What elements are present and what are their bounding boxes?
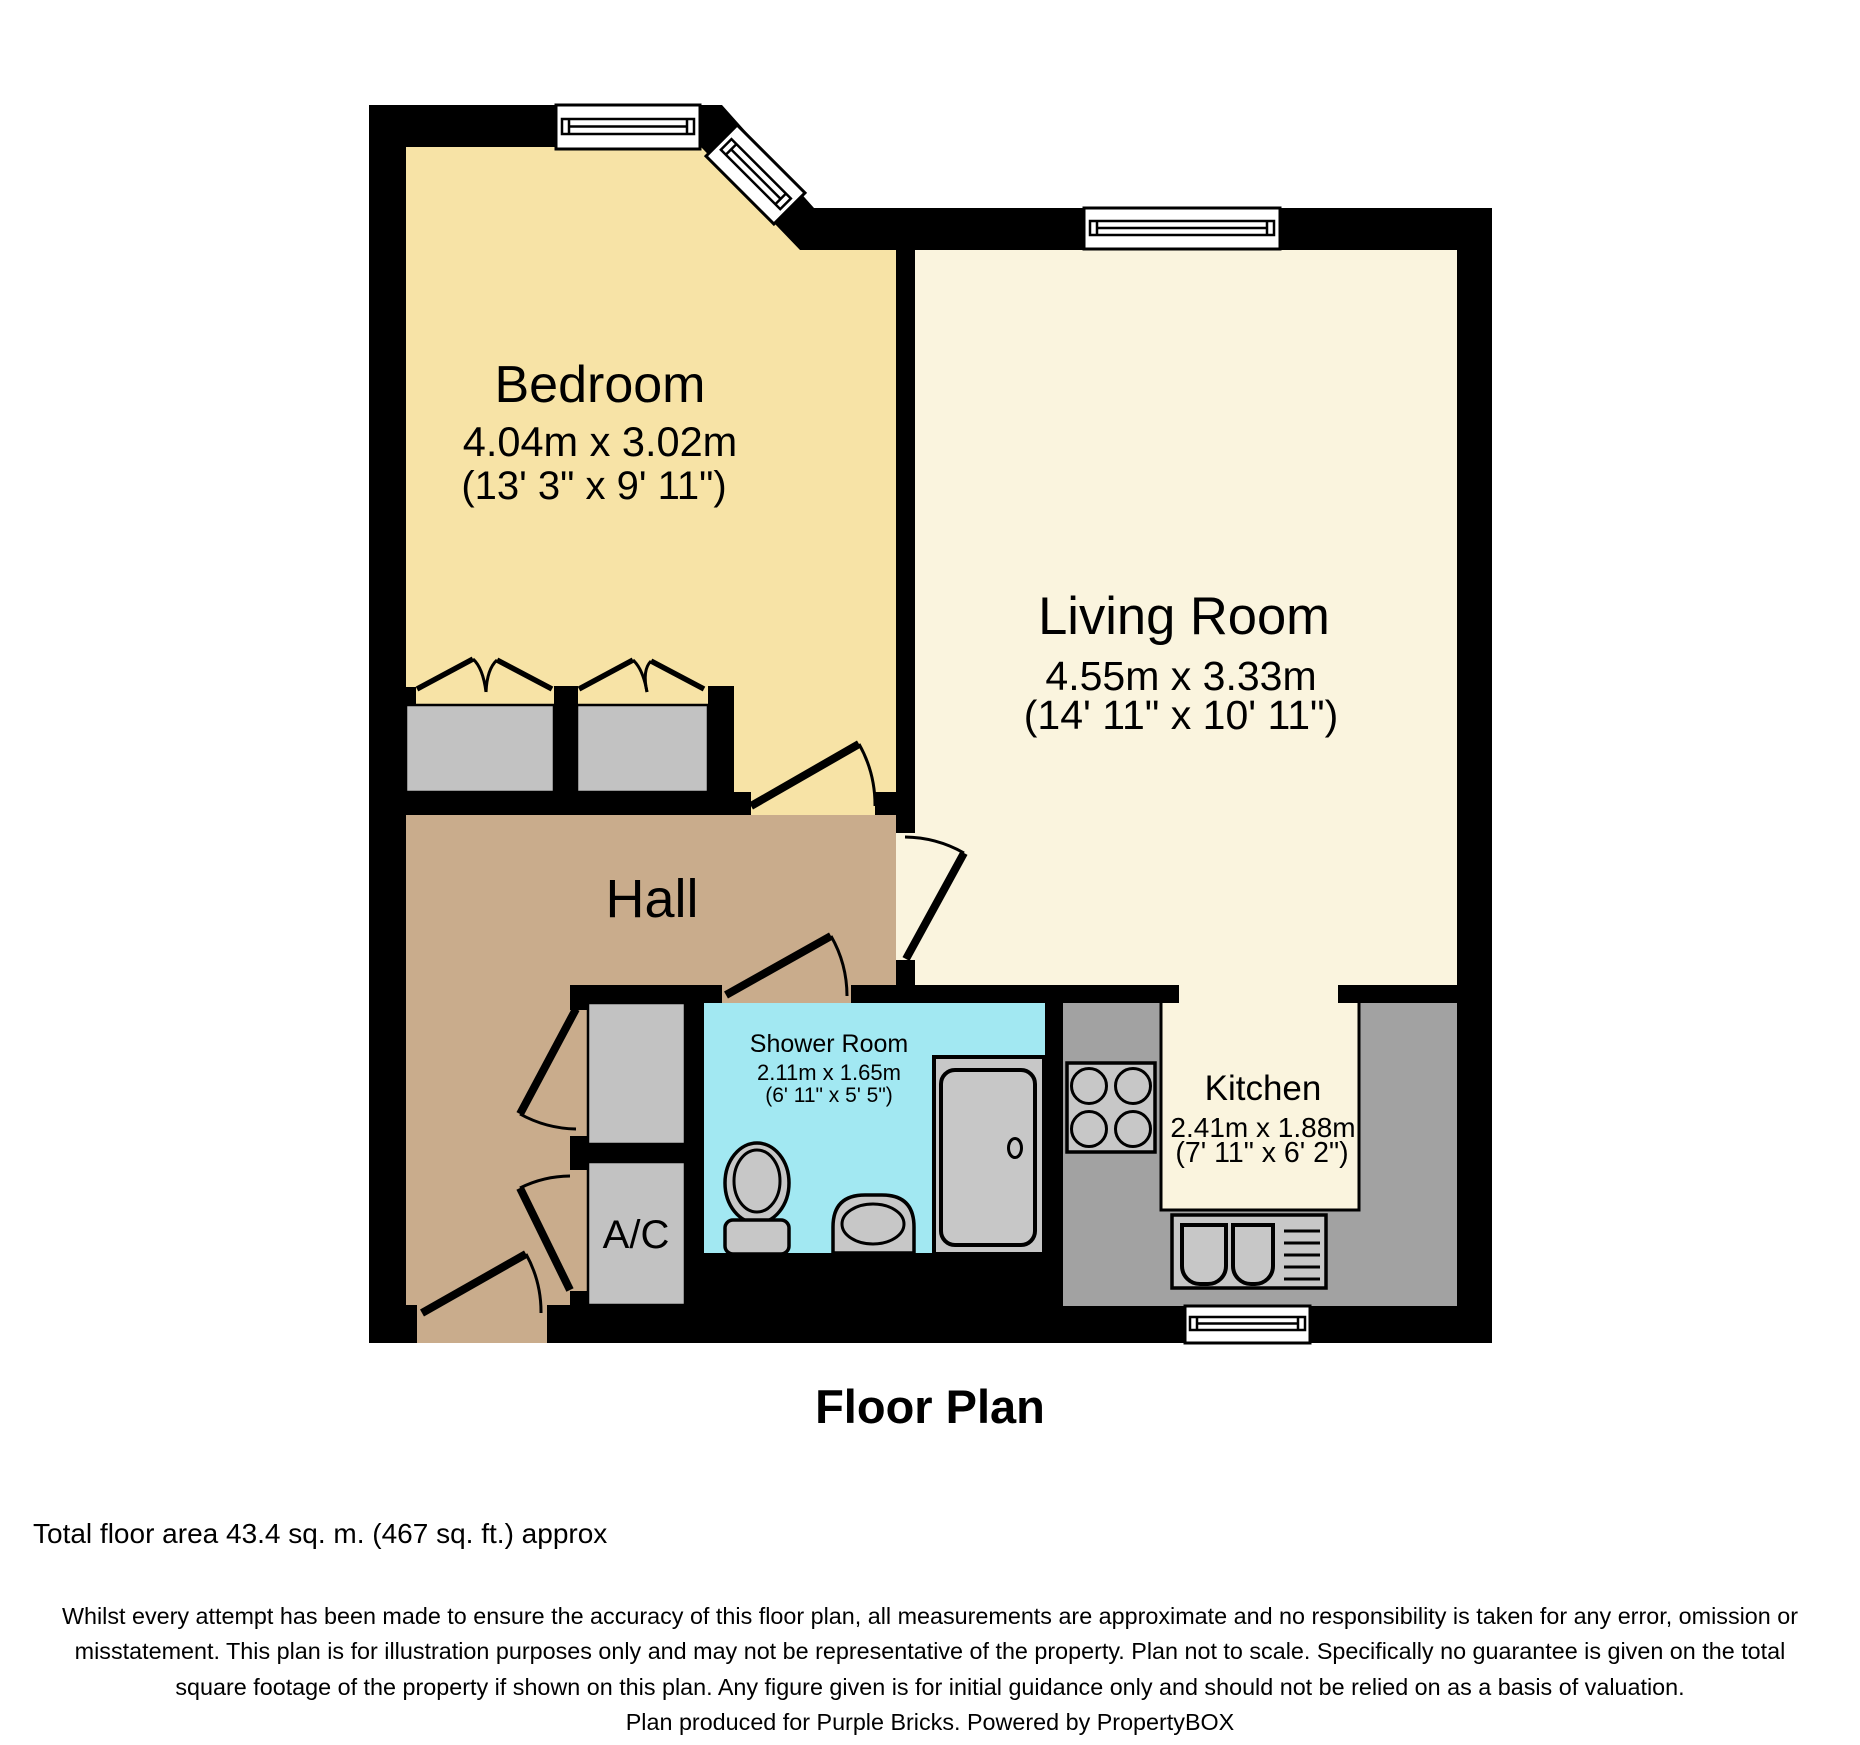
svg-text:Hall: Hall xyxy=(605,869,698,929)
svg-text:2.11m x 1.65m: 2.11m x 1.65m xyxy=(757,1060,901,1085)
svg-text:Plan produced for Purple Brick: Plan produced for Purple Bricks. Powered… xyxy=(626,1709,1235,1735)
svg-text:Living Room: Living Room xyxy=(1038,587,1330,646)
svg-text:Whilst every attempt has been: Whilst every attempt has been made to en… xyxy=(62,1603,1798,1629)
svg-text:Kitchen: Kitchen xyxy=(1205,1069,1322,1108)
svg-text:square footage of the property: square footage of the property if shown … xyxy=(175,1674,1684,1700)
svg-text:(7' 11" x 6' 2"): (7' 11" x 6' 2") xyxy=(1175,1137,1348,1169)
svg-text:4.04m x 3.02m: 4.04m x 3.02m xyxy=(463,418,738,465)
svg-text:A/C: A/C xyxy=(603,1213,670,1257)
svg-text:Total floor area 43.4 sq. m. (: Total floor area 43.4 sq. m. (467 sq. ft… xyxy=(33,1518,607,1549)
svg-text:Shower Room: Shower Room xyxy=(750,1030,908,1058)
svg-text:(14' 11" x 10' 11"): (14' 11" x 10' 11") xyxy=(1024,692,1338,738)
svg-text:Floor Plan: Floor Plan xyxy=(815,1380,1045,1433)
svg-text:Bedroom: Bedroom xyxy=(495,356,706,414)
svg-text:(13' 3" x 9' 11"): (13' 3" x 9' 11") xyxy=(461,464,726,508)
svg-text:(6' 11" x 5' 5"): (6' 11" x 5' 5") xyxy=(765,1084,893,1107)
svg-text:misstatement. This plan is for: misstatement. This plan is for illustrat… xyxy=(75,1638,1786,1664)
